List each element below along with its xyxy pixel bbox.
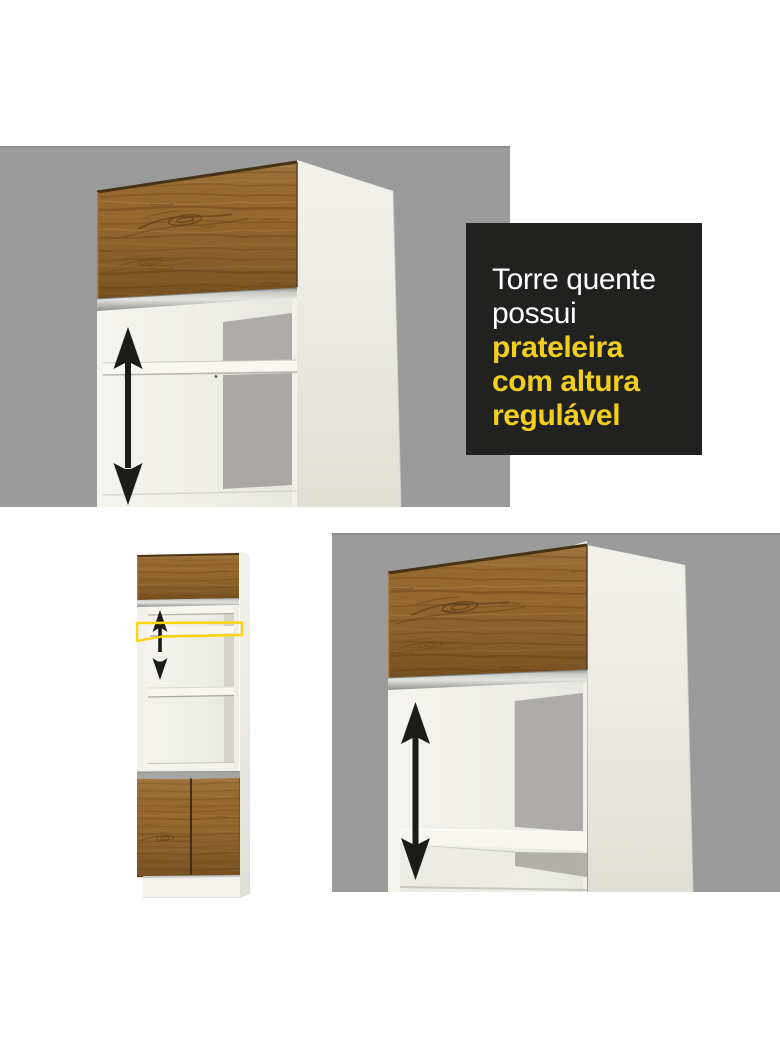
product-infographic: Torre quente possui prateleira com altur… [0, 0, 780, 1040]
cabinet-side-panel [240, 552, 250, 898]
cabinet-side-panel [587, 545, 693, 892]
callout-box: Torre quente possui prateleira com altur… [466, 223, 702, 455]
top-cabinet-detail-figure [0, 146, 510, 507]
shelf-pin [215, 375, 218, 378]
callout-line-4: com altura [492, 365, 694, 399]
plinth [143, 876, 240, 898]
lower-double-doors [132, 778, 240, 877]
callout-line-3: prateleira [492, 331, 694, 365]
callout-line-2: possui [492, 297, 694, 331]
upper-wood-door [137, 554, 239, 600]
callout-line-1: Torre quente [492, 263, 694, 297]
doors-top-rail [137, 772, 240, 780]
callout-line-5: regulável [492, 399, 694, 433]
cabinet-side-panel [297, 160, 401, 507]
cabinet-interior [137, 605, 239, 772]
bottom-cabinet-detail-figure [332, 533, 780, 892]
tower-overview-figure [130, 548, 255, 902]
